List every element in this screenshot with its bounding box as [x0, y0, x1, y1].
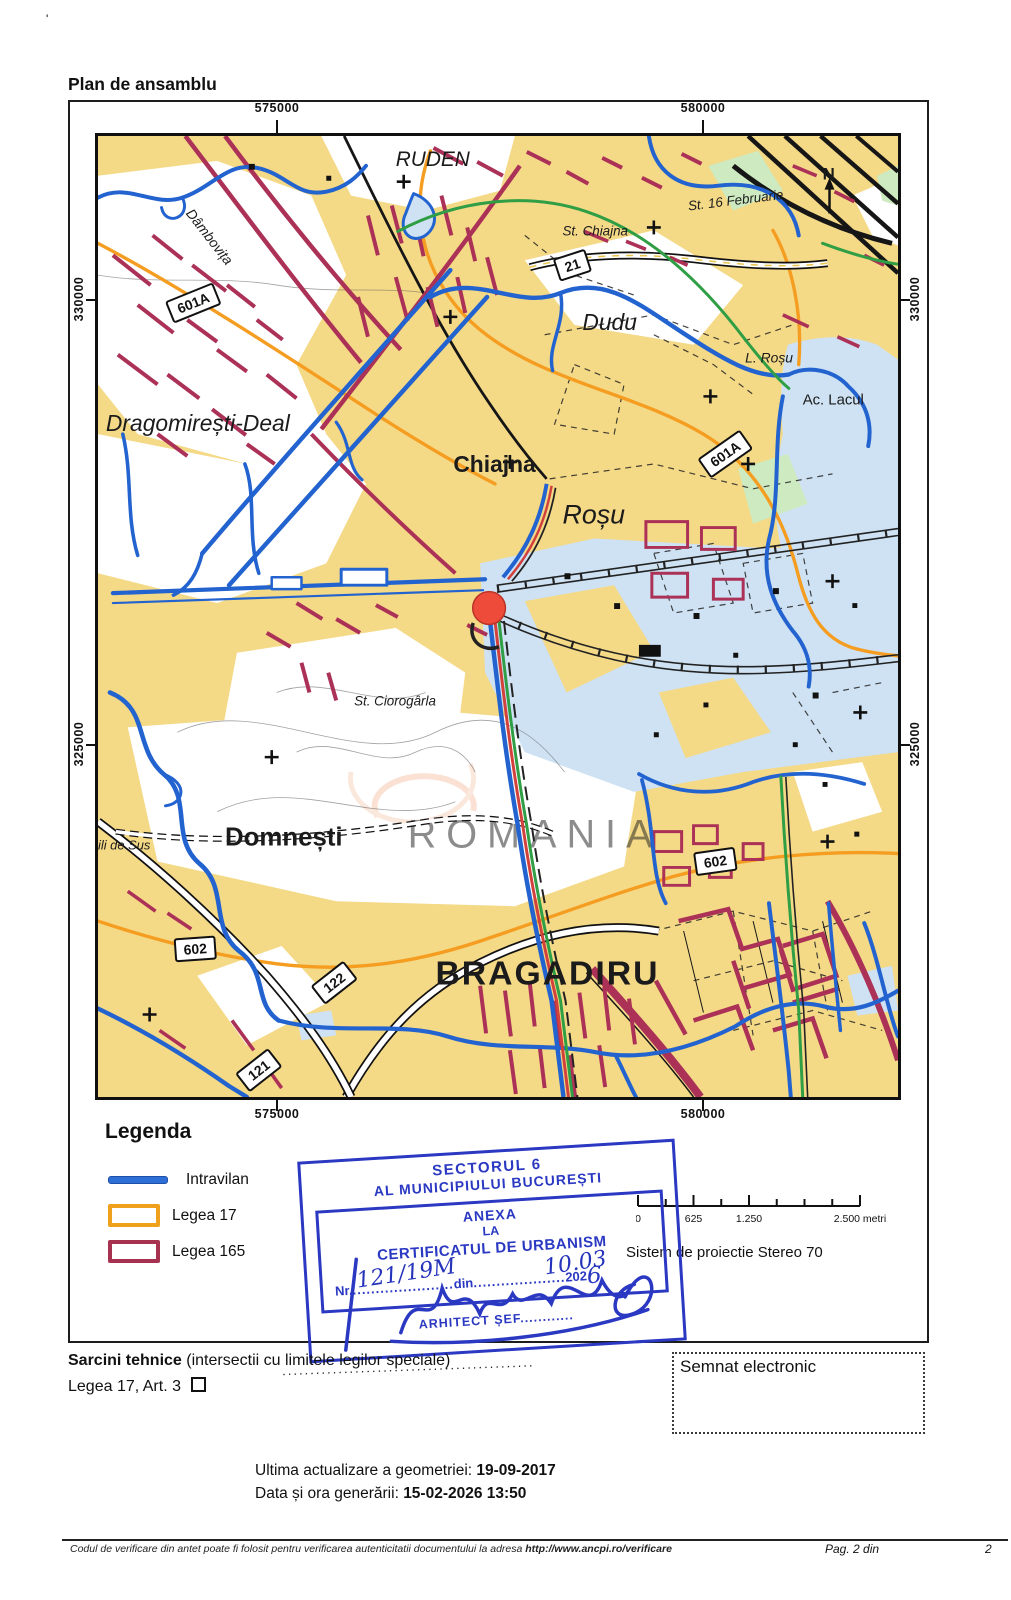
coord-right-bottom: 325000	[908, 716, 922, 772]
legend-item-legea165: Legea 165	[108, 1240, 245, 1263]
legea-art-line: Legea 17, Art. 3	[68, 1376, 206, 1396]
map-label-de-sus: ili de Sus	[98, 838, 151, 853]
sarcini-bold: Sarcini tehnice	[68, 1352, 182, 1369]
map-label-st-chiajna: St. Chiajna	[563, 223, 628, 238]
signature-scribble	[326, 1238, 671, 1359]
coord-left-bottom: 325000	[72, 716, 86, 772]
tick-right-bottom	[901, 744, 910, 746]
generation-date-value: 15-02-2026 13:50	[403, 1485, 526, 1502]
coord-bottom-left: 575000	[249, 1107, 305, 1121]
tick-top-right	[702, 120, 704, 133]
intravilan-swatch	[108, 1176, 168, 1184]
geometry-update-date: 19-09-2017	[476, 1462, 555, 1479]
coord-right-top: 330000	[908, 271, 922, 327]
tick-top-left	[276, 120, 278, 133]
map-label-l-rosu: L. Roșu	[745, 350, 793, 366]
footer-page-label: Pag. 2 din	[825, 1542, 879, 1556]
legend-item-label: Legea 165	[172, 1243, 245, 1261]
generation-date-line: Data și ora generării: 15-02-2026 13:50	[255, 1485, 526, 1503]
coord-top-right: 580000	[675, 101, 731, 115]
map-label-rosu: Roșu	[563, 500, 626, 530]
footer-note: Codul de verificare din antet poate fi f…	[70, 1543, 672, 1555]
map-label-domnesti: Domnești	[225, 824, 343, 852]
sarcini-rest: (intersectii cu limitele legilor special…	[182, 1352, 451, 1369]
map-label-dragomiresti-deal: Dragomirești-Deal	[106, 410, 291, 436]
footer-url: http://www.ancpi.ro/verificare	[525, 1543, 672, 1555]
signed-electronic-box: Semnat electronic	[672, 1352, 925, 1434]
map-canvas: ROMANIA	[98, 136, 898, 1097]
legea17-swatch	[108, 1204, 160, 1227]
map-label-ac-lacul: Ac. Lacul	[803, 392, 864, 408]
sarcini-line: Sarcini tehnice (intersectii cu limitele…	[68, 1352, 450, 1370]
map-label-bragadiru: BRAGADIRU	[435, 955, 659, 993]
road-sign-602-w: 602	[175, 937, 216, 962]
map-label-dudu: Dudu	[582, 309, 637, 335]
legend-title: Legenda	[105, 1120, 191, 1144]
road-sign-602-e: 602	[694, 848, 736, 875]
checkbox-icon	[191, 1377, 206, 1392]
legend-item-intravilan: Intravilan	[108, 1171, 249, 1189]
geometry-update-line: Ultima actualizare a geometriei: 19-09-2…	[255, 1462, 556, 1480]
scale-tick-625: 625	[685, 1213, 703, 1225]
coord-top-left: 575000	[249, 101, 305, 115]
tick-right-top	[901, 299, 910, 301]
footer-page-number: 2	[985, 1542, 992, 1556]
corner-mark: '	[46, 12, 48, 26]
legea165-swatch	[108, 1240, 160, 1263]
page-title: Plan de ansamblu	[68, 74, 217, 95]
map-label-ruden: RUDEN	[396, 148, 471, 171]
legend-item-label: Intravilan	[186, 1171, 249, 1189]
urbanism-stamp: SECTORUL 6 AL MUNICIPIULUI BUCUREȘTI ANE…	[297, 1139, 687, 1364]
scale-tick-2500: 2.500 metri	[834, 1213, 887, 1225]
svg-text:602: 602	[183, 940, 207, 958]
tick-left-bottom	[86, 744, 95, 746]
signed-electronic-label: Semnat electronic	[680, 1357, 816, 1376]
document-page: { "page": { "corner_mark": "'", "title":…	[0, 0, 1011, 1600]
legend-item-label: Legea 17	[172, 1207, 237, 1225]
scale-tick-1250: 1.250	[736, 1213, 762, 1225]
tick-left-top	[86, 299, 95, 301]
map-label-st-ciorogarla: St. Ciorogârla	[354, 693, 436, 708]
coord-bottom-right: 580000	[675, 1107, 731, 1121]
svg-text:602: 602	[703, 852, 728, 871]
location-marker	[473, 592, 506, 625]
coord-left-top: 330000	[72, 271, 86, 327]
footer-divider	[62, 1539, 1008, 1541]
map-frame: ROMANIA	[95, 133, 901, 1100]
map-label-chiajna: Chiajna	[453, 451, 536, 477]
legend-item-legea17: Legea 17	[108, 1204, 237, 1227]
